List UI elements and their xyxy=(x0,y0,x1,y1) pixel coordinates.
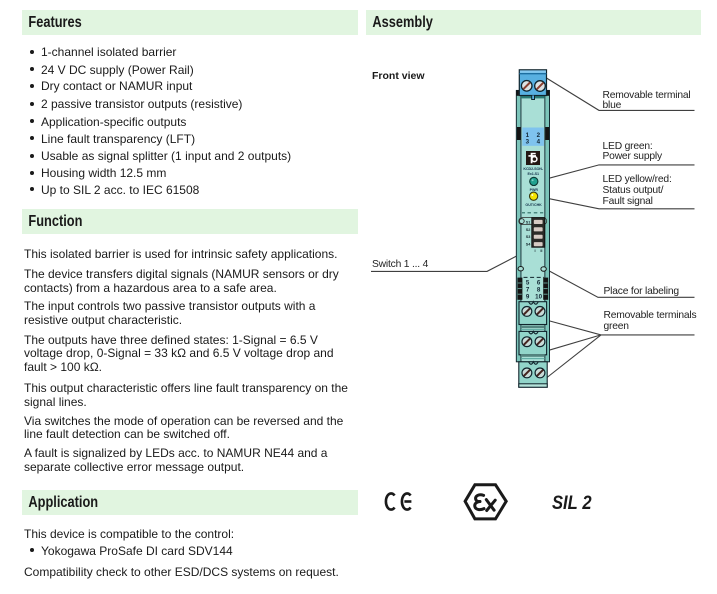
svg-text:OUT/CHK: OUT/CHK xyxy=(525,203,542,207)
svg-text:3: 3 xyxy=(526,139,530,146)
svg-text:8: 8 xyxy=(537,287,541,294)
svg-text:5: 5 xyxy=(526,280,530,287)
svg-text:S1: S1 xyxy=(526,220,531,224)
svg-text:10: 10 xyxy=(535,294,542,301)
svg-text:PWR: PWR xyxy=(530,188,539,192)
svg-text:9: 9 xyxy=(526,294,530,301)
svg-text:S3: S3 xyxy=(526,235,531,239)
svg-text:II: II xyxy=(540,249,542,253)
svg-text:6: 6 xyxy=(537,280,541,287)
svg-text:KCD2-SON-: KCD2-SON- xyxy=(523,167,543,171)
svg-text:7: 7 xyxy=(526,287,530,294)
svg-text:4: 4 xyxy=(537,139,541,146)
svg-text:I: I xyxy=(534,249,535,253)
svg-text:Ex1.S1: Ex1.S1 xyxy=(527,172,539,176)
svg-text:S2: S2 xyxy=(526,228,531,232)
